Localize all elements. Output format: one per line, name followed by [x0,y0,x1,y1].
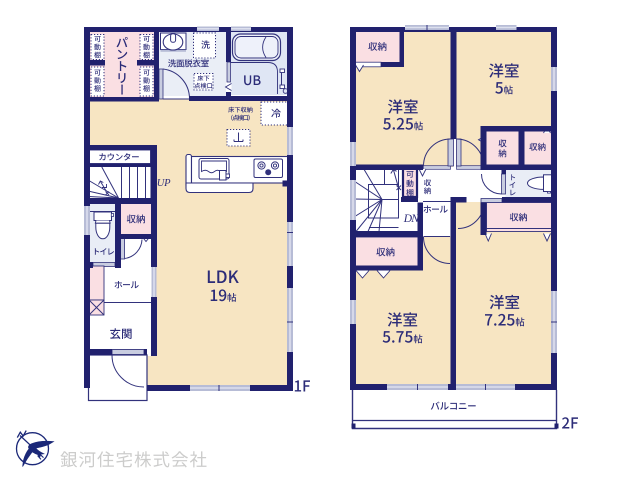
svg-text:UP: UP [157,178,171,189]
svg-text:DN: DN [403,213,421,225]
